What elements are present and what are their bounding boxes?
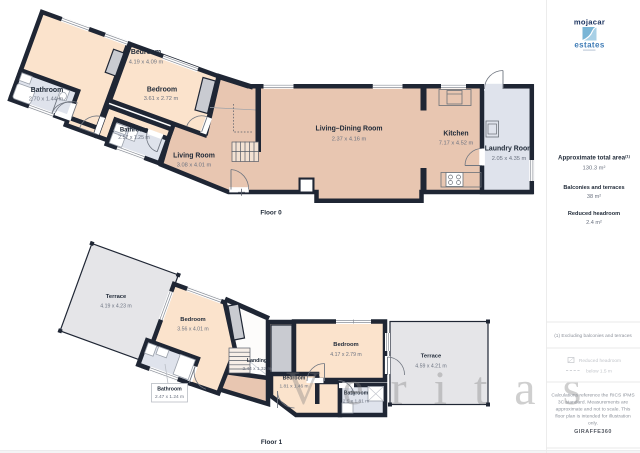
svg-text:Living Room: Living Room — [173, 153, 215, 160]
svg-text:Living–Dining Room: Living–Dining Room — [316, 126, 383, 133]
svg-text:(1) Excluding balconies and te: (1) Excluding balconies and terraces — [554, 333, 632, 339]
svg-text:Bathroom: Bathroom — [157, 387, 182, 393]
svg-text:mojacar: mojacar — [574, 18, 605, 27]
svg-text:estates: estates — [574, 41, 605, 50]
svg-text:Floor 1: Floor 1 — [261, 439, 283, 446]
svg-text:below 1.5 m: below 1.5 m — [586, 369, 612, 375]
svg-text:Bedroom: Bedroom — [147, 87, 177, 94]
svg-text:Balconies and terraces: Balconies and terraces — [563, 185, 624, 191]
svg-text:7.17 x 4.52 m: 7.17 x 4.52 m — [439, 141, 474, 147]
svg-text:3.61 x 2.72 m: 3.61 x 2.72 m — [144, 96, 179, 102]
svg-text:Bathroom: Bathroom — [31, 87, 64, 94]
svg-text:2.4 m²: 2.4 m² — [586, 220, 602, 226]
svg-text:Landing: Landing — [247, 358, 267, 364]
svg-text:4.17 x 2.79 m: 4.17 x 2.79 m — [330, 352, 361, 358]
svg-text:Reduced headroom: Reduced headroom — [579, 358, 621, 364]
svg-text:Kitchen: Kitchen — [443, 131, 468, 138]
svg-text:2.70 x 1.44 m: 2.70 x 1.44 m — [29, 97, 64, 103]
svg-text:2.57 x 1.25 m: 2.57 x 1.25 m — [118, 135, 149, 141]
svg-text:38 m²: 38 m² — [587, 194, 601, 200]
svg-text:2.05 x 4.35 m: 2.05 x 4.35 m — [492, 156, 527, 162]
svg-text:130.3 m²: 130.3 m² — [583, 166, 606, 172]
svg-text:3C standard. Measurements are: 3C standard. Measurements are — [558, 400, 628, 406]
svg-text:GIRAFFE360: GIRAFFE360 — [574, 429, 612, 435]
svg-text:Terrace: Terrace — [421, 354, 442, 360]
svg-text:2.44 x 1.32 m: 2.44 x 1.32 m — [242, 366, 271, 372]
svg-text:Terrace: Terrace — [106, 294, 127, 300]
svg-text:Bedroom: Bedroom — [333, 342, 358, 348]
svg-text:2.37 x 4.16 m: 2.37 x 4.16 m — [332, 137, 367, 143]
svg-text:3.08 x 4.01 m: 3.08 x 4.01 m — [177, 163, 212, 169]
svg-text:floor plan is intended for ill: floor plan is intended for illustration — [555, 414, 631, 420]
svg-text:Reduced headroom: Reduced headroom — [568, 211, 620, 217]
svg-text:only.: only. — [588, 421, 598, 427]
svg-text:4.19 x 4.23 m: 4.19 x 4.23 m — [100, 304, 131, 310]
svg-text:4.19 x 4.09 m: 4.19 x 4.09 m — [129, 60, 164, 66]
svg-text:3.56 x 4.01 m: 3.56 x 4.01 m — [177, 327, 208, 333]
svg-text:approximate and not to scale.: approximate and not to scale. This — [556, 407, 631, 413]
svg-text:Bedroom: Bedroom — [180, 317, 205, 323]
svg-text:Calculations reference the RIC: Calculations reference the RICS IPMS — [551, 393, 635, 399]
svg-text:Bathroom: Bathroom — [120, 128, 148, 134]
svg-text:2.47 x 1.24 m: 2.47 x 1.24 m — [155, 394, 184, 400]
svg-text:Approximate total area(1): Approximate total area(1) — [558, 154, 631, 162]
svg-text:Laundry Room: Laundry Room — [485, 146, 534, 153]
svg-text:Floor 0: Floor 0 — [260, 210, 282, 217]
svg-text:Bedroom: Bedroom — [131, 49, 161, 56]
